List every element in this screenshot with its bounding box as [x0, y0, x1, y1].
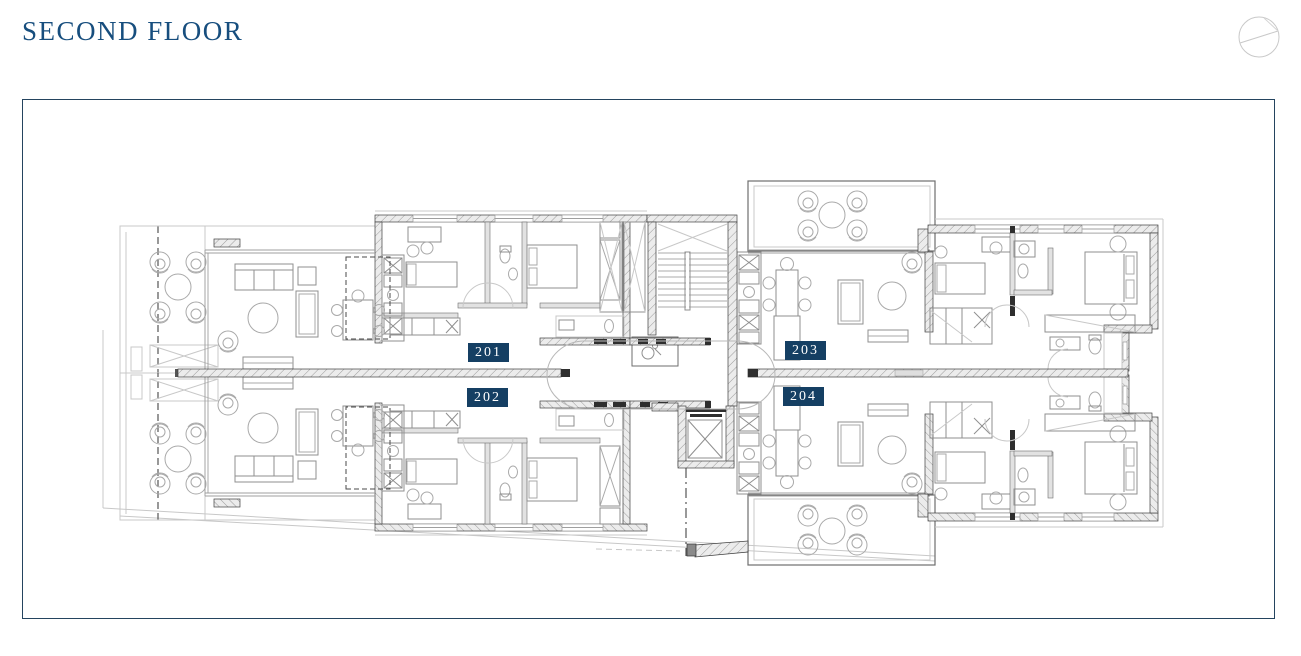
unit-badge-201[interactable]: 201: [468, 343, 509, 362]
elevator: [652, 403, 734, 468]
wheelchair-icon: [642, 347, 654, 359]
unit-badge-203[interactable]: 203: [785, 341, 826, 360]
windows: [413, 215, 603, 222]
unit-badge-202[interactable]: 202: [467, 388, 508, 407]
floor-plan-drawing: [0, 0, 1301, 656]
entrance-lobby-corridor: [547, 341, 775, 409]
stair-treads: [658, 253, 727, 307]
page: { "header": { "title": "SECOND FLOOR", "…: [0, 0, 1301, 656]
unit-badge-204[interactable]: 204: [783, 387, 824, 406]
party-wall: [175, 369, 1128, 377]
